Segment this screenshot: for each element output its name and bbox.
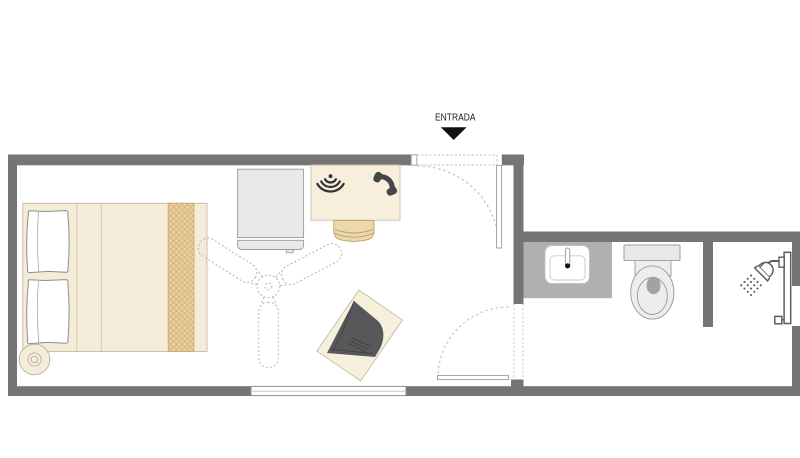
svg-text:ENTRADA: ENTRADA — [435, 113, 476, 124]
